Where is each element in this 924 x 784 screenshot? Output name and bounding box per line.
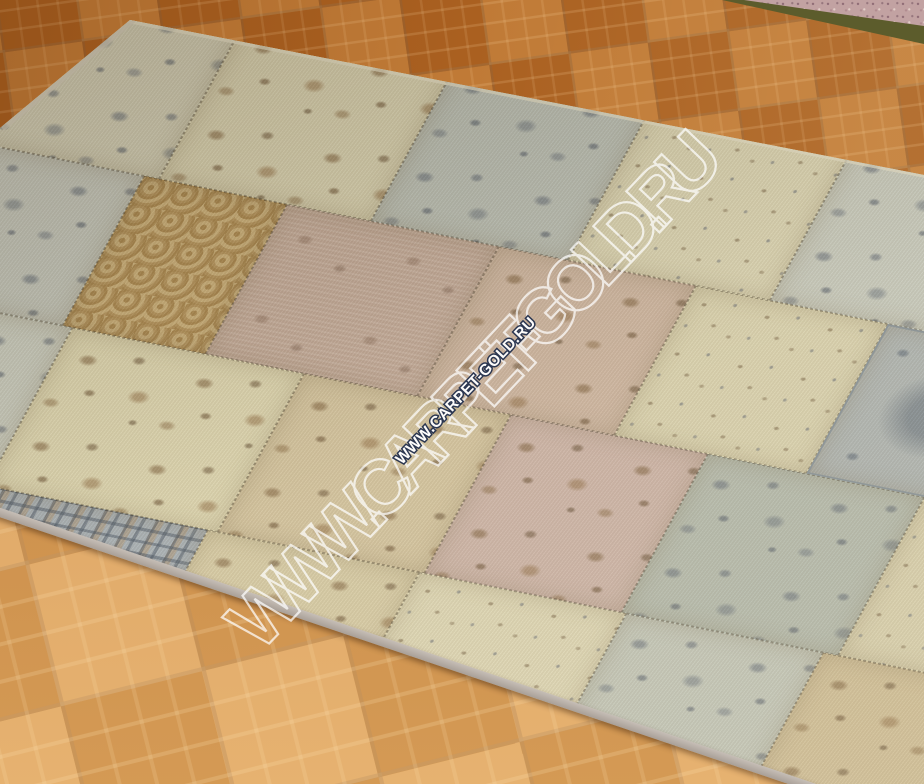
room-photo: WWW.CARPET-GOLD.RU WWW.CARPET-GOLD.RU bbox=[0, 0, 924, 784]
